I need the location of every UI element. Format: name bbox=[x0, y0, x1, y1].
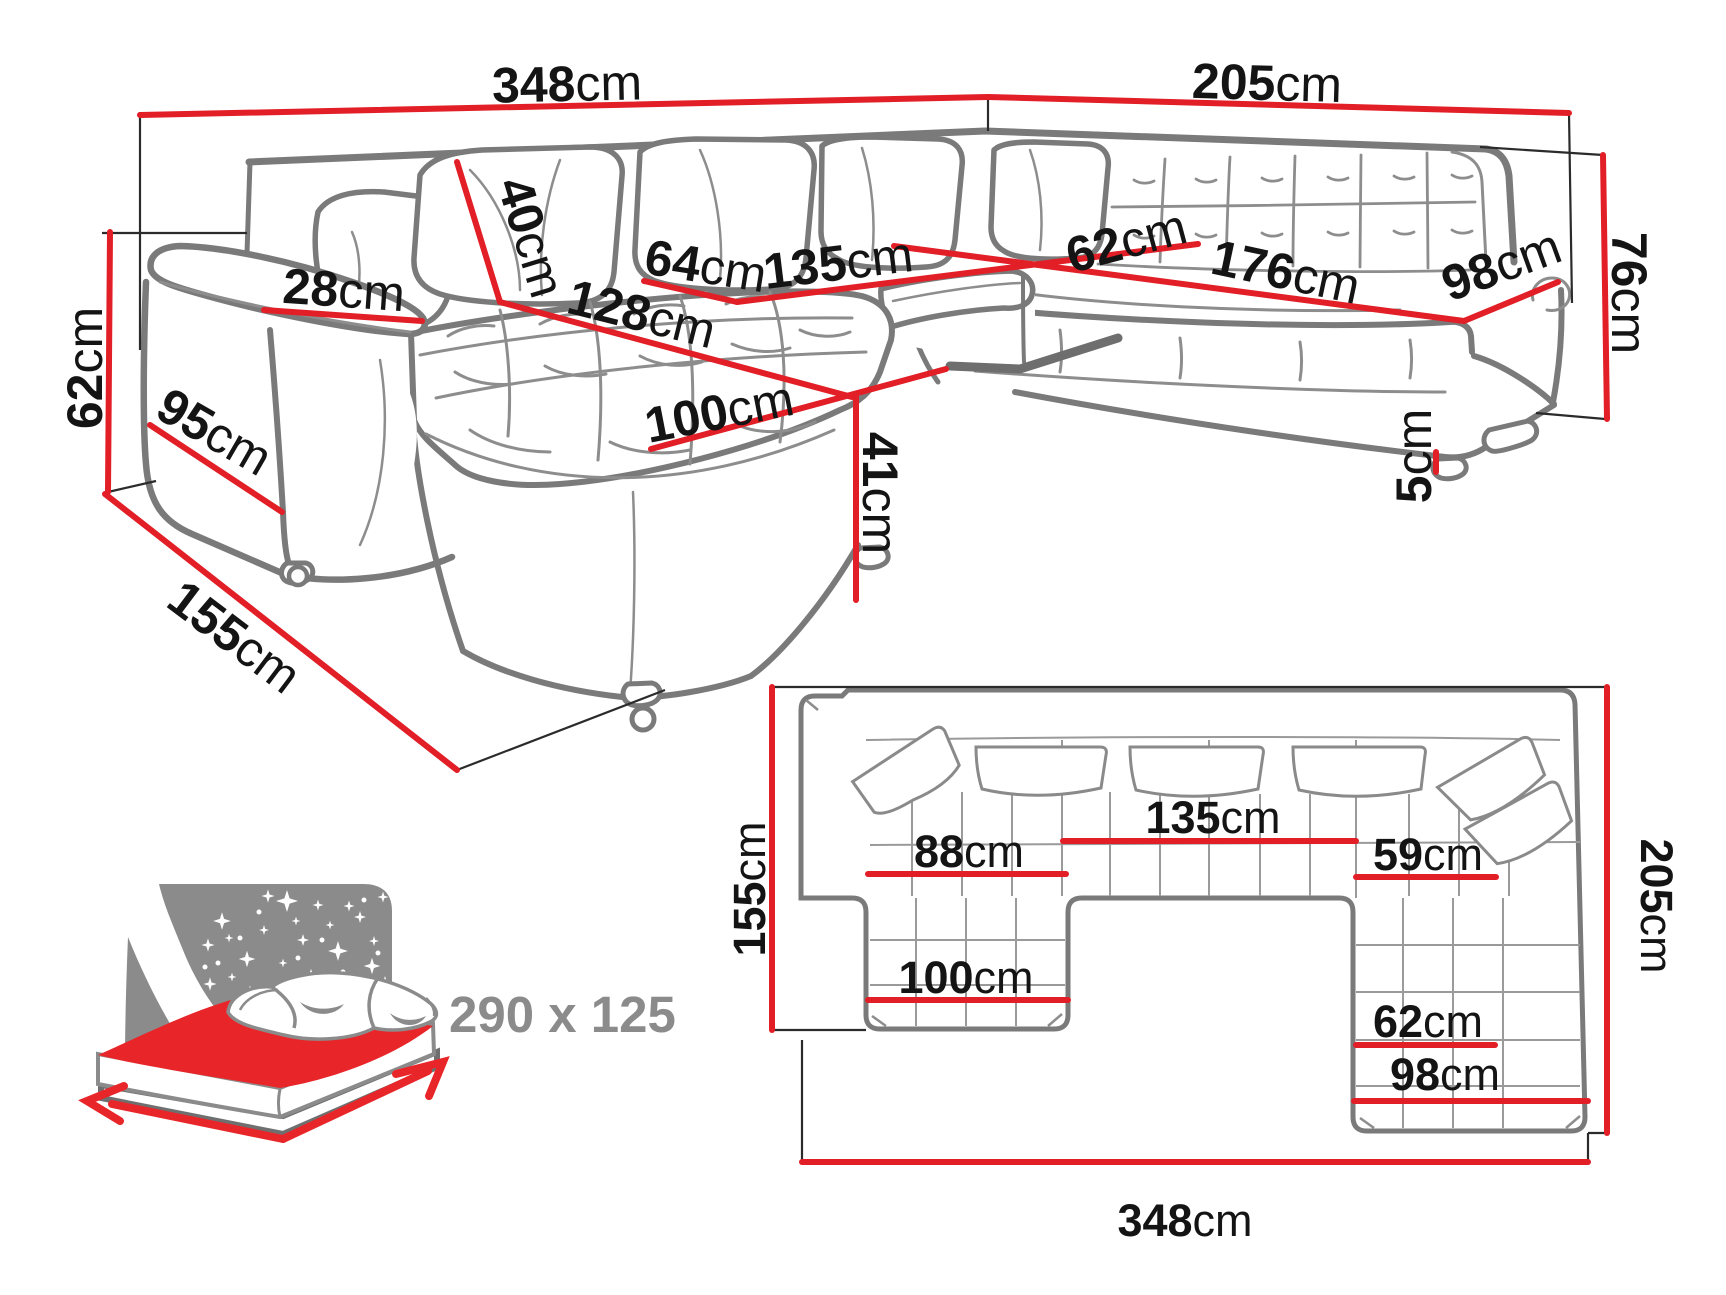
svg-text:41cm: 41cm bbox=[852, 432, 908, 554]
svg-text:135cm: 135cm bbox=[1145, 792, 1280, 843]
svg-text:348cm: 348cm bbox=[491, 54, 642, 113]
svg-text:98cm: 98cm bbox=[1390, 1049, 1500, 1100]
svg-text:62cm: 62cm bbox=[57, 307, 113, 429]
svg-text:205cm: 205cm bbox=[1191, 53, 1343, 113]
svg-text:28cm: 28cm bbox=[281, 258, 407, 322]
svg-text:348cm: 348cm bbox=[1117, 1195, 1252, 1246]
svg-text:5cm: 5cm bbox=[1386, 409, 1442, 503]
svg-text:76cm: 76cm bbox=[1601, 232, 1657, 354]
svg-text:100cm: 100cm bbox=[898, 952, 1033, 1003]
svg-text:59cm: 59cm bbox=[1373, 829, 1483, 880]
svg-text:62cm: 62cm bbox=[1373, 996, 1483, 1047]
svg-text:290 x 125: 290 x 125 bbox=[449, 986, 676, 1043]
svg-text:88cm: 88cm bbox=[914, 826, 1024, 877]
svg-text:205cm: 205cm bbox=[1631, 838, 1682, 973]
svg-text:155cm: 155cm bbox=[724, 821, 775, 956]
